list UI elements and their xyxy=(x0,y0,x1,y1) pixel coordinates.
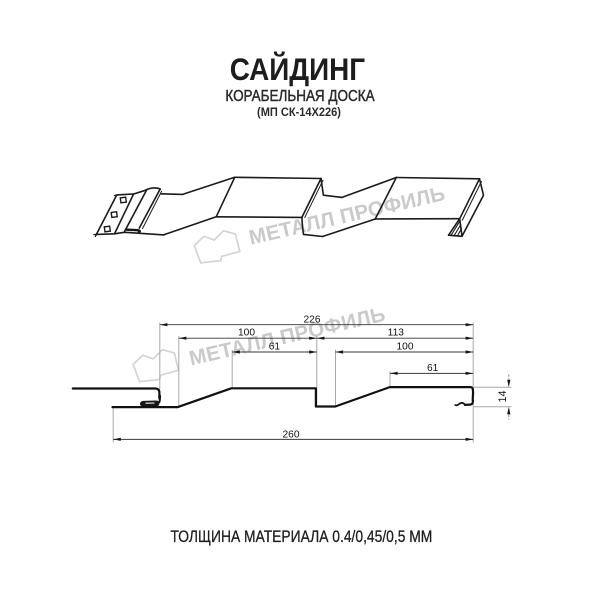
svg-text:ТОЛЩИНА МАТЕРИАЛА 0.4/0,45/0,5: ТОЛЩИНА МАТЕРИАЛА 0.4/0,45/0,5 ММ xyxy=(170,528,432,546)
svg-text:226: 226 xyxy=(304,314,321,325)
svg-text:61: 61 xyxy=(269,342,281,353)
svg-text:(МП СК-14Х226): (МП СК-14Х226) xyxy=(257,107,341,119)
svg-text:100: 100 xyxy=(397,342,414,353)
svg-text:61: 61 xyxy=(427,363,439,374)
svg-text:САЙДИНГ: САЙДИНГ xyxy=(230,51,366,87)
svg-text:260: 260 xyxy=(283,430,300,441)
svg-text:14: 14 xyxy=(497,390,509,402)
svg-text:КОРАБЕЛЬНАЯ ДОСКА: КОРАБЕЛЬНАЯ ДОСКА xyxy=(225,88,375,105)
svg-text:100: 100 xyxy=(238,328,255,339)
svg-text:113: 113 xyxy=(388,328,405,339)
